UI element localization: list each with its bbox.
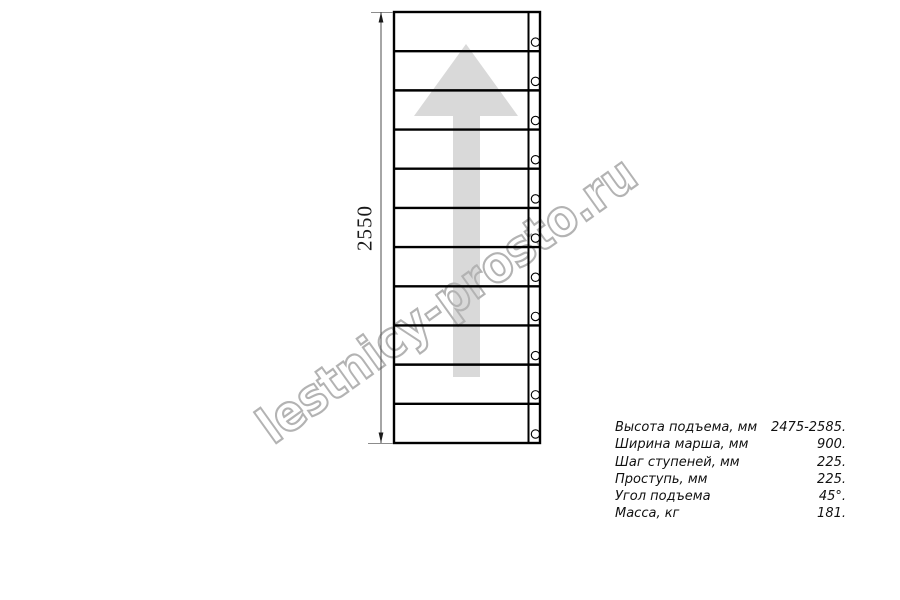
spec-row: Ширина марша, мм 900. [615,436,846,453]
spec-row: Проступь, мм 225. [615,471,846,488]
spec-value: 225. [817,454,846,471]
dimension-value: 2550 [353,205,377,251]
spec-value: 2475-2585. [771,419,846,436]
watermark-text: lestnicy-prosto.ru [246,145,647,455]
mounting-hole-circle [531,156,539,164]
mounting-hole-circle [531,116,539,124]
mounting-hole-circle [531,430,539,438]
spec-value: 900. [817,436,846,453]
mounting-hole-circle [531,312,539,320]
spec-value: 181. [817,505,846,522]
dimension-arrowhead-top [379,12,384,23]
spec-label: Шаг ступеней, мм [615,454,740,471]
mounting-hole-circle [531,391,539,399]
mounting-hole-circle [531,77,539,85]
spec-table: Высота подъема, мм 2475-2585. Ширина мар… [615,419,846,523]
spec-label: Угол подъема [615,488,711,505]
spec-label: Проступь, мм [615,471,707,488]
spec-row: Масса, кг 181. [615,505,846,522]
mounting-hole-circle [531,195,539,203]
spec-row: Высота подъема, мм 2475-2585. [615,419,846,436]
mounting-hole-circle [531,351,539,359]
mounting-hole-circle [531,234,539,242]
page: lestnicy-prosto.ru 2550 Высота подъема, … [0,0,900,600]
mounting-hole-circle [531,38,539,46]
spec-value: 225. [817,471,846,488]
spec-label: Ширина марша, мм [615,436,748,453]
spec-label: Масса, кг [615,505,679,522]
dimension-arrowhead-bottom [379,433,384,444]
spec-value: 45°. [819,488,846,505]
mounting-hole-circle [531,273,539,281]
spec-label: Высота подъема, мм [615,419,757,436]
spec-row: Угол подъема 45°. [615,488,846,505]
spec-row: Шаг ступеней, мм 225. [615,454,846,471]
